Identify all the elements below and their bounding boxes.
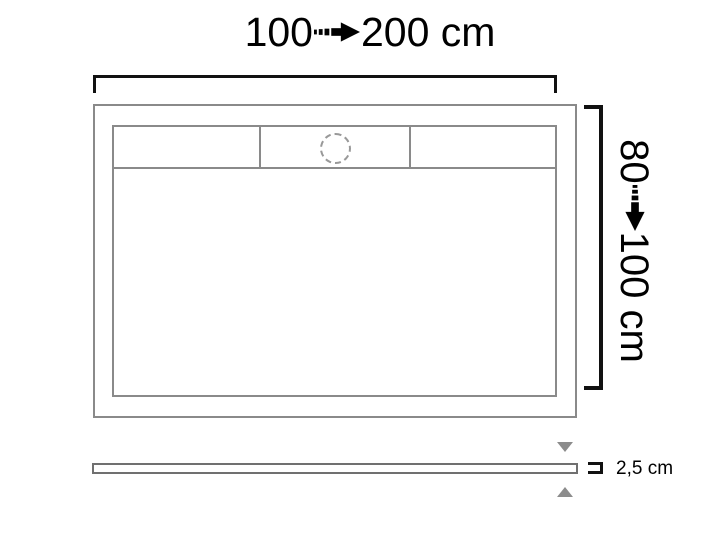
tray-drain-channel [114,127,555,169]
tray-inner-edge [112,125,557,397]
width-range-from: 100 [245,9,313,55]
thickness-label: 2,5 cm [616,459,673,478]
range-arrow-icon [625,185,645,231]
triangle-up-icon [557,487,573,497]
tray-outer-edge [93,104,577,418]
thickness-bracket-icon [588,462,603,474]
triangle-down-icon [557,442,573,452]
shower-tray-diagram: 100 200 cm 80 [0,0,720,540]
channel-cell-right [411,127,555,167]
width-dimension-bracket [93,75,557,93]
depth-range-to: 100 cm [612,232,656,363]
drain-circle-icon [320,133,351,164]
range-arrow-icon [314,22,360,42]
width-range-to: 200 cm [361,9,495,55]
channel-cell-left [114,127,259,167]
width-dimension-label: 100 200 cm [130,8,610,58]
depth-dimension-bracket [584,105,603,390]
depth-dimension-label: 80 100 cm [611,131,657,371]
channel-cell-middle [259,127,411,167]
side-view-bar [92,463,578,474]
depth-range-from: 80 [612,139,656,184]
